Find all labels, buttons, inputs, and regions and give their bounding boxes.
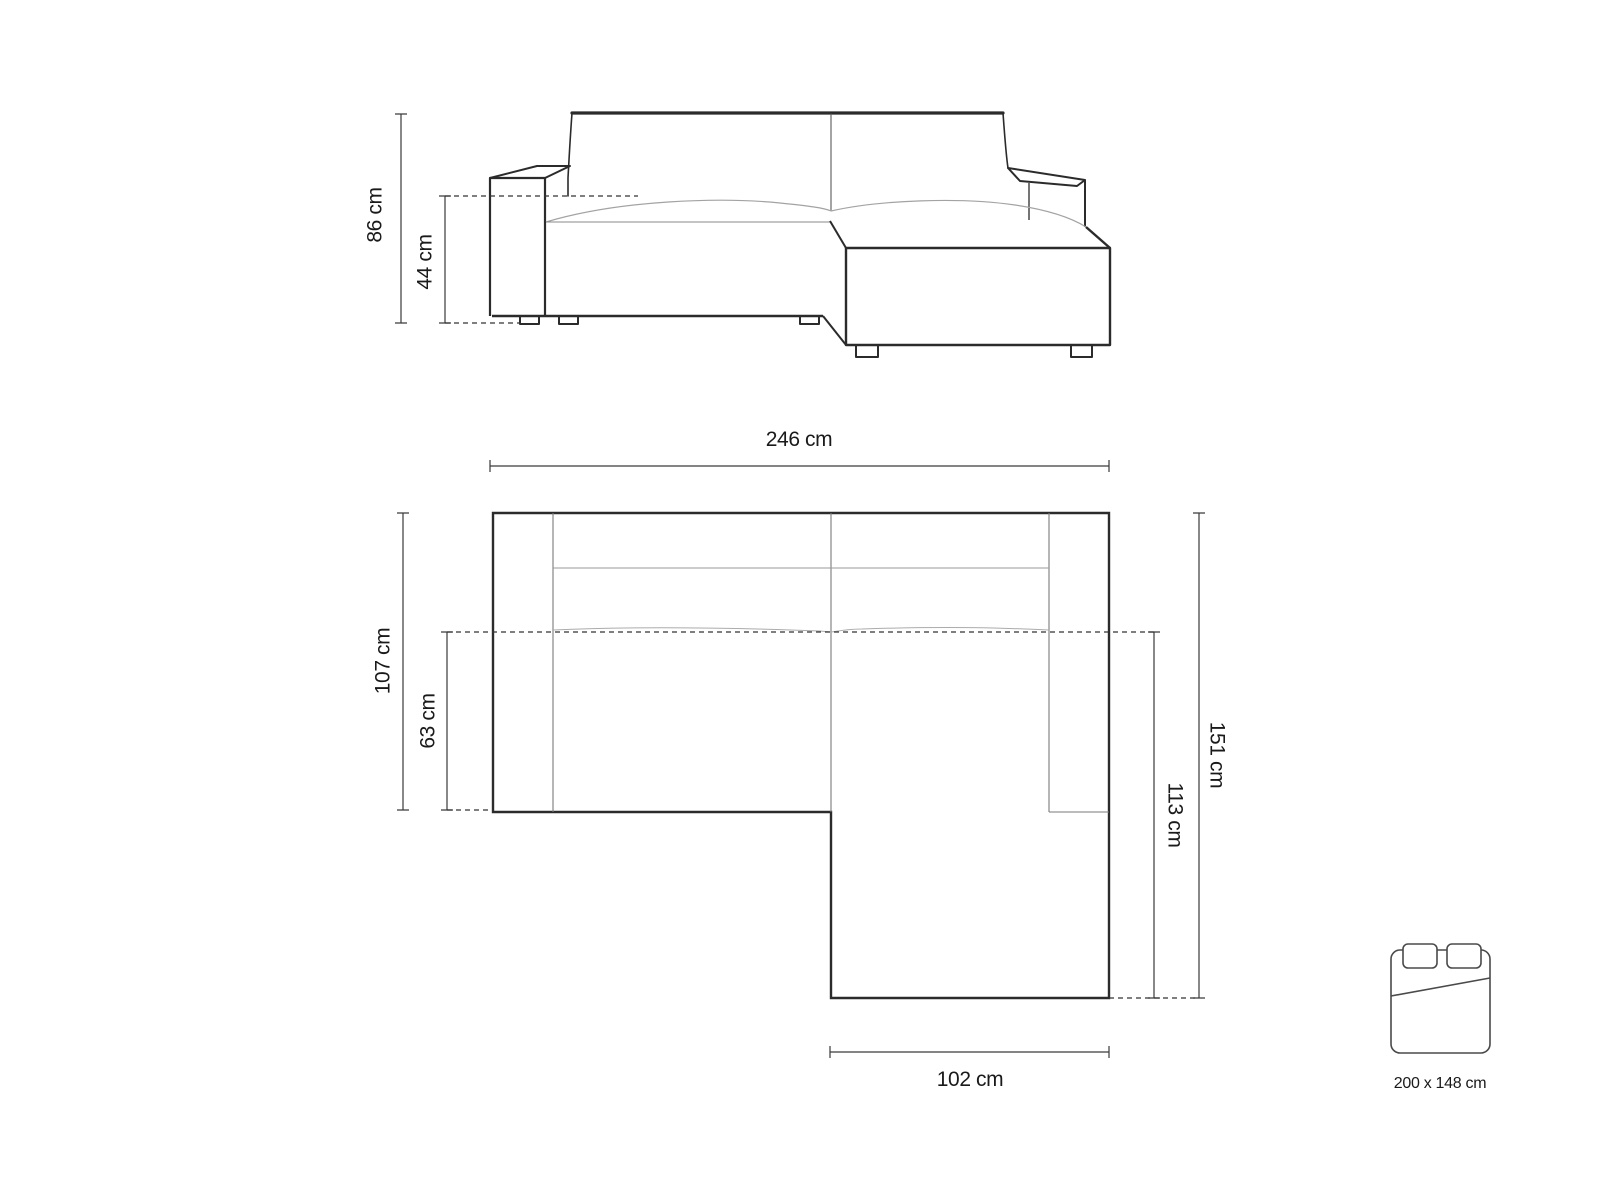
top-plan-view: 246 cm 107 cm 63 cm 151 cm 113 cm 102 cm xyxy=(371,428,1228,1091)
chaise-front xyxy=(823,221,1110,357)
seat-height-label: 44 cm xyxy=(413,234,436,289)
dimension-overall-width xyxy=(490,460,1109,472)
main-depth-label: 107 cm xyxy=(371,628,394,694)
dimension-seat-height xyxy=(439,196,451,323)
dimension-overall-depth xyxy=(1193,513,1205,998)
plan-outline xyxy=(493,513,1109,998)
sofa-base-and-feet xyxy=(492,316,823,324)
bed-pillow-left xyxy=(1403,944,1437,968)
left-armrest xyxy=(490,166,570,316)
bed-icon xyxy=(1391,944,1490,1053)
bed-duvet-fold xyxy=(1391,978,1490,996)
front-view-dimensions xyxy=(395,114,638,323)
seat-depth-label: 63 cm xyxy=(416,693,439,748)
chaise-width-label: 102 cm xyxy=(937,1068,1003,1091)
overall-width-label: 246 cm xyxy=(766,428,832,451)
dimension-chaise-depth xyxy=(1148,632,1160,998)
diagram-svg: 86 cm 44 cm xyxy=(0,0,1600,1200)
dimension-main-depth xyxy=(397,513,409,810)
right-armrest xyxy=(1008,168,1085,227)
plan-inner-lines xyxy=(553,513,1109,812)
plan-dimensions xyxy=(397,460,1205,1058)
overall-depth-label: 151 cm xyxy=(1206,722,1229,788)
dimension-chaise-width xyxy=(830,1046,1109,1058)
dimension-overall-height xyxy=(395,114,407,323)
bed-pillow-right xyxy=(1447,944,1481,968)
chaise-depth-label: 113 cm xyxy=(1164,783,1187,848)
sofa-dimension-diagram: 86 cm 44 cm xyxy=(0,0,1600,1200)
dimension-seat-depth xyxy=(441,632,453,810)
sleeping-area-label: 200 x 148 cm xyxy=(1394,1075,1486,1092)
front-elevation-view: 86 cm 44 cm xyxy=(363,113,1110,357)
seat-cushion-lines xyxy=(546,200,1086,227)
overall-height-label: 86 cm xyxy=(363,187,386,242)
